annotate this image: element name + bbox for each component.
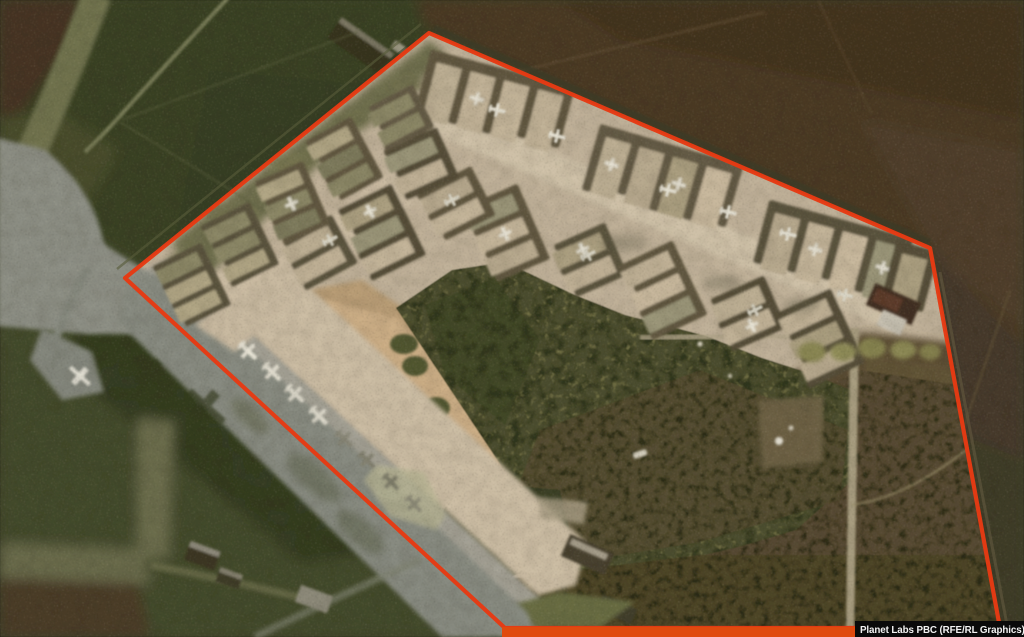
svg-text:Planet Labs PBC (RFE/RL Graphi: Planet Labs PBC (RFE/RL Graphics) bbox=[860, 625, 1024, 636]
